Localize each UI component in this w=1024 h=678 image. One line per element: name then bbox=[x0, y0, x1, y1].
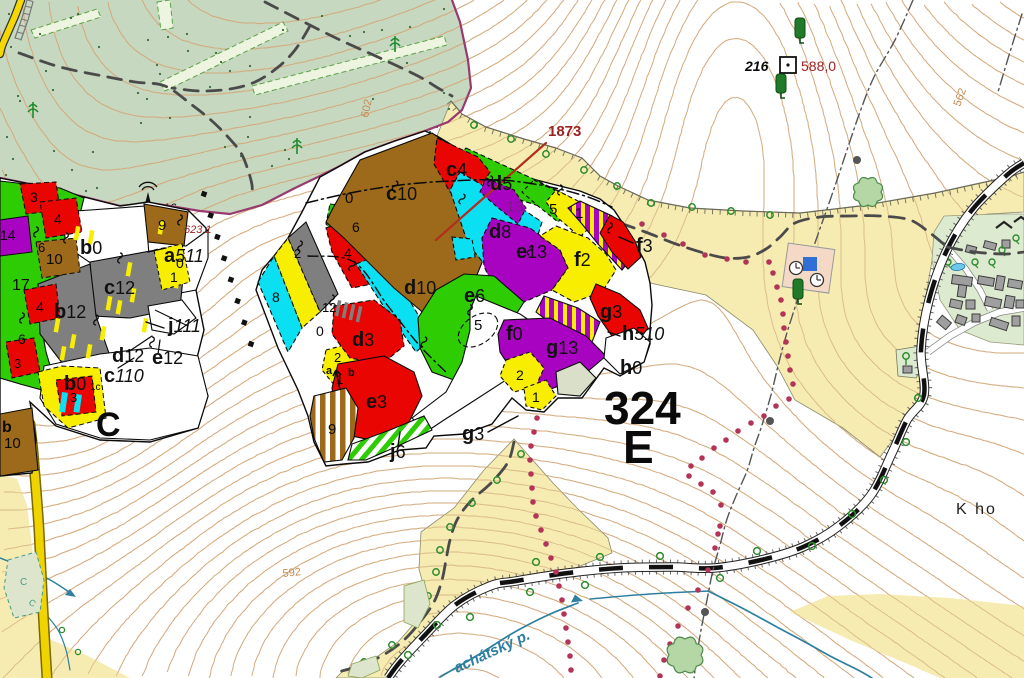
svg-text:9: 9 bbox=[158, 217, 166, 234]
svg-text:c10: c10 bbox=[386, 183, 417, 205]
svg-text:1: 1 bbox=[170, 269, 178, 285]
svg-text:6: 6 bbox=[38, 240, 45, 255]
svg-text:216: 216 bbox=[744, 58, 769, 74]
svg-text:d5: d5 bbox=[490, 173, 512, 195]
svg-text:f3: f3 bbox=[636, 235, 653, 257]
svg-text:c12: c12 bbox=[104, 277, 135, 299]
svg-text:h0: h0 bbox=[620, 357, 642, 379]
svg-text:0: 0 bbox=[316, 323, 324, 339]
svg-text:5: 5 bbox=[474, 317, 482, 334]
svg-text:C: C bbox=[96, 406, 121, 444]
svg-text:K ho: K ho bbox=[956, 501, 997, 518]
svg-text:588,0: 588,0 bbox=[801, 58, 836, 74]
svg-text:8: 8 bbox=[272, 289, 280, 305]
svg-text:1873: 1873 bbox=[548, 123, 581, 140]
svg-text:g3: g3 bbox=[462, 423, 484, 445]
svg-text:2: 2 bbox=[334, 350, 341, 365]
svg-text:E: E bbox=[623, 421, 654, 473]
svg-text:1: 1 bbox=[532, 389, 540, 405]
svg-text:1c: 1c bbox=[90, 382, 101, 393]
svg-text:b0: b0 bbox=[80, 237, 102, 259]
svg-text:17: 17 bbox=[12, 277, 30, 294]
svg-text:j6: j6 bbox=[389, 441, 406, 463]
svg-text:2: 2 bbox=[516, 367, 524, 383]
svg-text:13: 13 bbox=[506, 199, 524, 216]
svg-text:5: 5 bbox=[549, 201, 557, 218]
svg-text:1: 1 bbox=[575, 205, 583, 222]
svg-text:a511: a511 bbox=[164, 245, 204, 267]
svg-text:0: 0 bbox=[176, 255, 184, 271]
svg-text:b: b bbox=[2, 419, 12, 436]
svg-text:10: 10 bbox=[4, 435, 21, 452]
svg-text:f0: f0 bbox=[506, 323, 523, 345]
svg-text:1: 1 bbox=[336, 372, 343, 387]
svg-text:4: 4 bbox=[54, 211, 62, 227]
svg-text:3: 3 bbox=[14, 356, 21, 371]
svg-text:4: 4 bbox=[36, 299, 44, 315]
svg-text:b12: b12 bbox=[54, 301, 86, 323]
svg-text:c110: c110 bbox=[104, 365, 144, 387]
svg-text:c4: c4 bbox=[446, 159, 467, 181]
svg-text:e6: e6 bbox=[464, 285, 485, 307]
svg-text:d10: d10 bbox=[404, 277, 436, 299]
svg-text:6: 6 bbox=[352, 219, 360, 235]
svg-text:14: 14 bbox=[0, 227, 16, 243]
svg-text:C: C bbox=[20, 577, 27, 588]
svg-text:9: 9 bbox=[328, 421, 336, 438]
svg-text:f2: f2 bbox=[574, 249, 591, 271]
svg-text:a: a bbox=[326, 365, 333, 377]
svg-text:b: b bbox=[348, 367, 355, 379]
svg-text:j111: j111 bbox=[167, 315, 201, 337]
svg-text:h510: h510 bbox=[622, 323, 664, 345]
svg-text:6: 6 bbox=[18, 331, 26, 347]
svg-text:g13: g13 bbox=[546, 337, 578, 359]
svg-text:e12: e12 bbox=[152, 347, 183, 369]
svg-text:623,1: 623,1 bbox=[184, 224, 212, 236]
svg-text:592: 592 bbox=[282, 566, 302, 580]
svg-text:10: 10 bbox=[46, 251, 63, 268]
svg-text:3: 3 bbox=[70, 390, 77, 405]
svg-text:e3: e3 bbox=[366, 391, 387, 413]
svg-text:d8: d8 bbox=[489, 221, 511, 243]
svg-text:e13: e13 bbox=[516, 241, 547, 263]
svg-text:d3: d3 bbox=[352, 329, 374, 351]
svg-text:4: 4 bbox=[344, 245, 352, 261]
svg-text:g3: g3 bbox=[600, 301, 622, 323]
svg-text:d12: d12 bbox=[112, 345, 144, 367]
svg-text:3: 3 bbox=[30, 189, 38, 205]
